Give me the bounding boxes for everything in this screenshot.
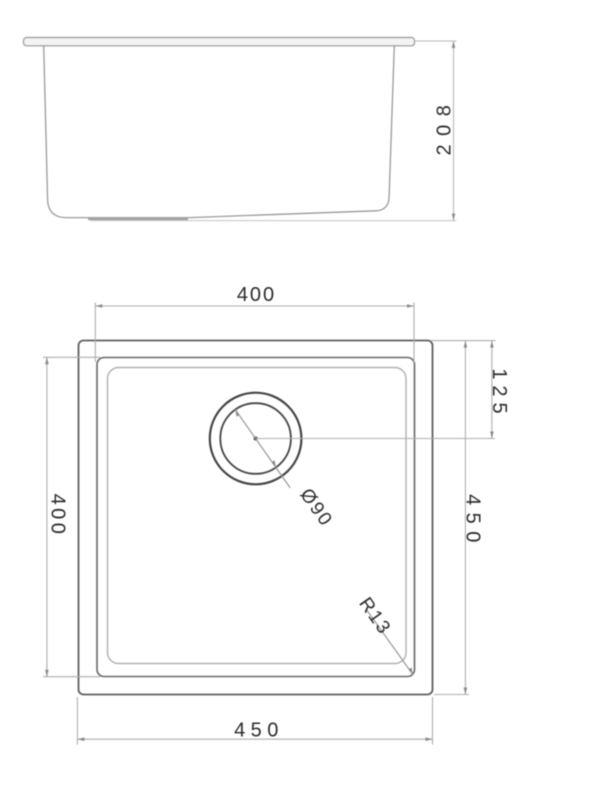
svg-text:208: 208 <box>434 97 456 156</box>
svg-text:400: 400 <box>237 284 276 306</box>
svg-text:450: 450 <box>234 719 284 741</box>
svg-text:450: 450 <box>462 494 484 550</box>
svg-text:400: 400 <box>47 494 69 538</box>
svg-text:125: 125 <box>488 368 510 419</box>
